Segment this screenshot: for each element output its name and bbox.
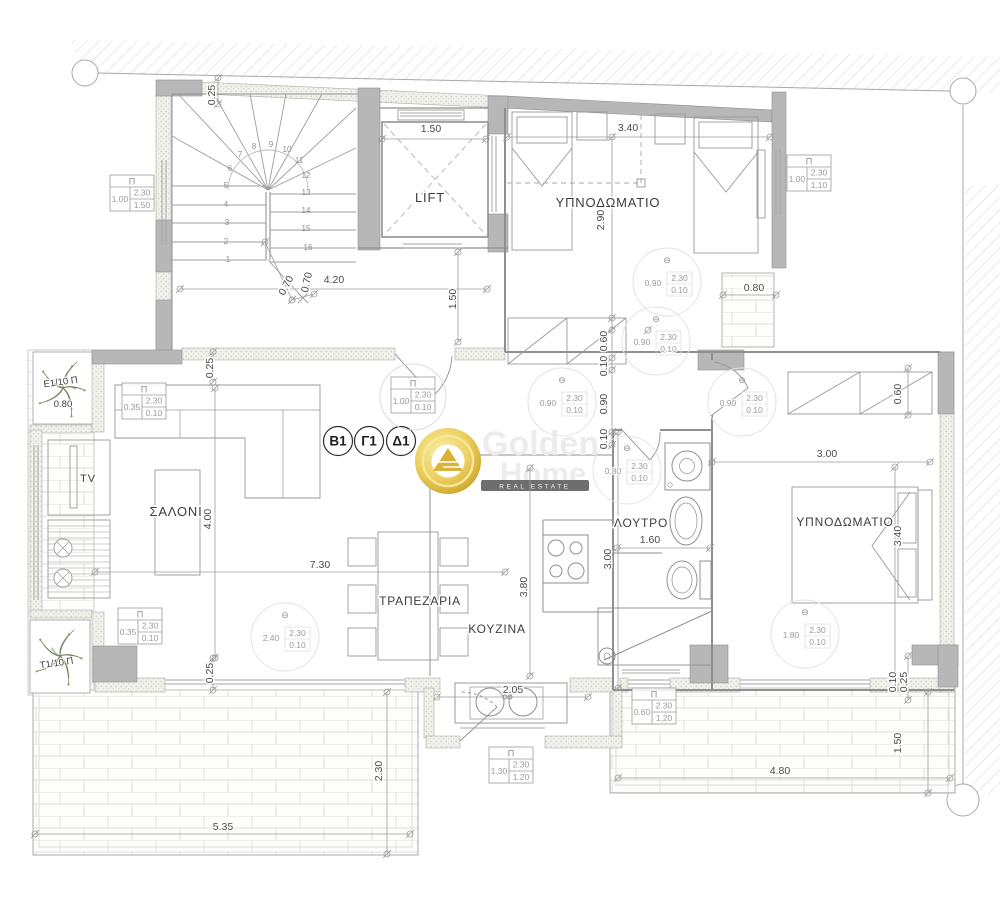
pillow [898,549,916,597]
room-label-bedroom-top: ΥΠΝΟΔΩΜΑΤΙΟ [556,195,661,210]
door-width: 1.00 [789,174,806,184]
gold-coin-logo [415,428,481,494]
door-marker: Π0.352.300.10 [118,608,162,644]
dimension-label: 0.60 [598,331,610,352]
dimension-label: 0.25 [204,663,216,684]
door-marker: Π1.302.301.20 [489,747,533,783]
dimension-label: 0.70 [299,271,315,294]
room-label-lift: LIFT [415,190,445,205]
dimension-label: 3.00 [602,549,614,570]
theta-symbol: ⊖ [558,375,566,385]
door-width: 0.60 [634,707,651,717]
window-sill: 0.10 [746,405,763,415]
bed [512,112,572,250]
window-sill: 0.10 [660,344,677,354]
door-height: 2.30 [415,390,432,400]
stair-step-number: 7 [238,150,243,159]
unit-badge-label: Γ1 [361,434,377,449]
survey-marker-top-right [950,78,976,104]
window-width: 0.90 [645,278,662,288]
chair [440,538,468,566]
dimension-label: 4.20 [324,274,345,286]
window-width: 0.90 [634,337,651,347]
window-width: 0.90 [720,398,737,408]
room-label-bedroom-right: ΥΠΝΟΔΩΜΑΤΙΟ [796,515,893,529]
window-height: 2.30 [631,461,648,471]
door-marker: Π0.352.300.10 [122,383,166,419]
window-sill: 0.10 [631,473,648,483]
pillow [517,117,567,143]
chair [348,538,376,566]
dimension-label: 0.60 [892,384,904,405]
theta-symbol: ⊖ [801,607,809,617]
door-sill: 0.10 [415,402,432,412]
dimension-label: 2.90 [595,210,607,231]
stair-step-number: 1 [226,255,231,264]
stair-step-number: 3 [225,218,230,227]
lift-cross [384,124,486,235]
bedroom-right-furniture [788,372,932,603]
wardrobe [788,372,932,414]
door-marker: Π0.602.301.20 [632,688,676,724]
dimension-label: 1.50 [447,289,459,310]
door-height: 2.30 [656,701,673,711]
window-marker: ⊖0.902.300.10 [708,368,776,436]
dimension-label: 3.80 [518,577,530,598]
stair-step-number: 8 [252,142,257,151]
window-width: 1.80 [783,630,800,640]
dimension-label: 1.60 [640,534,661,546]
nightstand [655,114,685,144]
floor-plan-svg: Golden Home REAL ESTATE B1Γ1Δ1Π1.002.301… [0,0,1000,923]
dimension-label: 0.25 [898,672,910,693]
dimension-label: 1.50 [421,123,442,135]
dimension-label: 3.40 [892,526,904,547]
blanket-fold [512,148,572,186]
window-width: 2.40 [263,633,280,643]
dimension-label: 3.00 [817,448,838,460]
dimension-label: 4.00 [202,509,214,530]
dimension-label: 7.30 [310,559,331,571]
watermark: Golden Home REAL ESTATE [415,425,599,494]
stair-step-number: 11 [295,156,304,165]
door-height: 2.30 [513,760,530,770]
pi-symbol: Π [410,379,417,389]
door-height: 2.30 [146,396,163,406]
site-hatch-right [965,185,1000,795]
theta-symbol: ⊖ [738,375,746,385]
stair-step-number: 14 [302,206,311,215]
room-label-living: ΣΑΛΟΝΙ [149,504,202,519]
stair-step-number: 13 [302,188,311,197]
door-sill: 1.20 [513,772,530,782]
theta-symbol: ⊖ [663,255,671,265]
door-width: 0.35 [124,402,141,412]
door-height: 2.30 [811,168,828,178]
chair [348,585,376,613]
pillow [699,122,752,148]
door-height: 2.30 [134,188,151,198]
door-marker: Π1.002.301.50 [110,175,154,211]
door-sill: 1.20 [656,713,673,723]
headboard [918,490,932,600]
stair-step-number: 12 [302,171,311,180]
chair [348,628,376,656]
door-width: 1.00 [393,396,410,406]
stair-step-number: 4 [224,200,229,209]
watermark-banner-text: REAL ESTATE [499,484,570,491]
pi-symbol: Π [129,177,136,187]
dimension-label: 1.50 [892,733,904,754]
window-marker: ⊖2.402.300.10 [251,603,319,671]
dimension-label: 4.80 [770,765,791,777]
dimension-label: 0.25 [206,85,218,106]
dimension-label: 0.70 [276,274,296,298]
door-width: 1.00 [112,194,129,204]
door-sill: 1.50 [134,200,151,210]
window-marker: ⊖1.802.300.10 [771,600,839,668]
stair-step-number: 2 [224,237,229,246]
window-sill: 0.10 [289,640,306,650]
dimension-label: 0.10 [598,429,610,450]
window-marker: ⊖0.902.300.10 [622,307,690,375]
coffee-table [155,470,200,575]
stove [543,535,588,583]
staircase [172,94,356,303]
stair-step-number: 9 [269,140,274,149]
door-sill: 0.10 [146,408,163,418]
planter-label: 0.80 [54,399,73,410]
stair-step-number: 10 [283,145,292,154]
theta-symbol: ⊖ [623,443,631,453]
door-width: 1.30 [491,766,508,776]
window-sill: 0.10 [566,405,583,415]
window-height: 2.30 [671,273,688,283]
room-label-kitchen: ΚΟΥΖΙΝΑ [468,622,526,636]
window-width: 0.90 [540,398,557,408]
pi-symbol: Π [508,749,515,759]
stair-step-number: 6 [228,164,233,173]
floor-plan-canvas: Golden Home REAL ESTATE B1Γ1Δ1Π1.002.301… [0,0,1000,923]
dimension-label: 0.80 [744,282,765,294]
window-width: 0.80 [605,466,622,476]
dimension-label: 2.05 [503,684,524,696]
stair-step-number: 16 [304,243,313,252]
unit-badge-label: B1 [329,434,347,449]
pi-symbol: Π [137,610,144,620]
room-label-bath: ΛΟΥΤΡΟ [614,516,668,530]
dimension-label: 0.10 [598,356,610,377]
door-marker: Π1.002.300.10 [391,377,435,413]
pi-symbol: Π [141,385,148,395]
theta-symbol: ⊖ [652,314,660,324]
room-label-dining: ΤΡΑΠΕΖΑΡΙΑ [379,594,461,608]
dimension-label: 0.90 [598,394,610,415]
unit-badge-label: Δ1 [392,434,410,449]
dimension-label: 5.35 [213,821,234,833]
window-height: 2.30 [746,393,763,403]
door-width: 0.35 [120,627,137,637]
pi-symbol: Π [651,690,658,700]
door-sill: 0.10 [142,633,159,643]
lift-vent-grille [400,113,462,116]
door-height: 2.30 [142,621,159,631]
window-sill: 0.10 [809,637,826,647]
chair [440,628,468,656]
blanket-fold [694,152,758,192]
nightstand [577,112,607,140]
dimension-label: 2.30 [373,761,385,782]
window-sill: 0.10 [671,285,688,295]
window-height: 2.30 [809,625,826,635]
dimension-label: 0.25 [204,358,216,379]
room-label-tv: TV [80,473,96,485]
window-marker: ⊖0.902.300.10 [633,248,701,316]
survey-marker-top-left [72,60,98,86]
theta-symbol: ⊖ [281,610,289,620]
pi-symbol: Π [806,157,813,167]
toilet [667,561,711,599]
window-height: 2.30 [566,393,583,403]
dimension-label: 3.40 [618,122,639,134]
stair-step-number: 5 [224,181,229,190]
window-height: 2.30 [289,628,306,638]
window-height: 2.30 [660,332,677,342]
door-marker: Π1.002.301.10 [787,155,831,191]
bathroom-fixtures [598,443,712,673]
blanket-fold [872,492,910,600]
door-sill: 1.10 [811,180,828,190]
stair-step-number: 15 [302,224,311,233]
